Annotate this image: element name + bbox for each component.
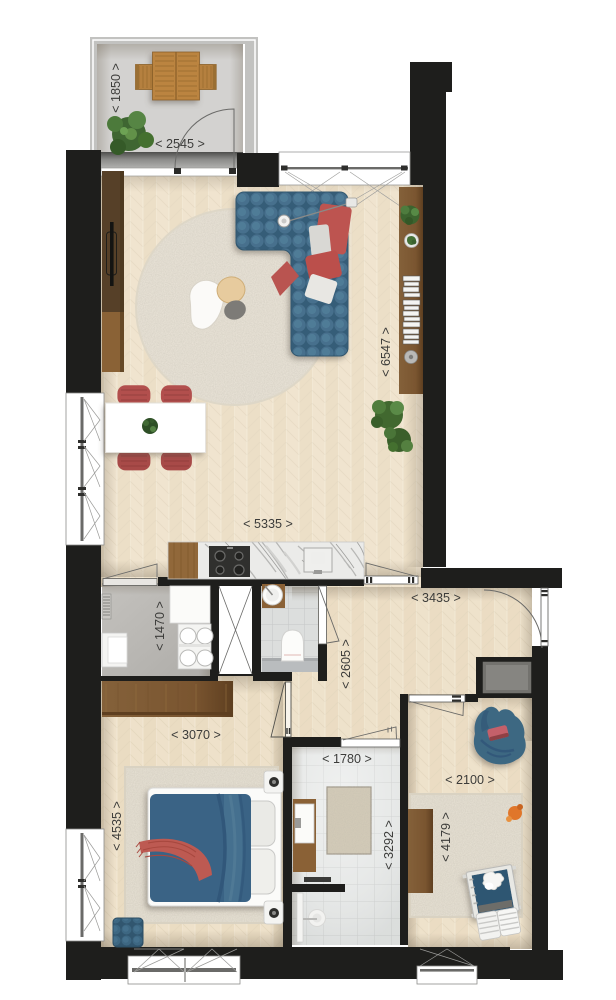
svg-text:< 3292 >: < 3292 > [382,820,396,870]
svg-text:< 4179 >: < 4179 > [439,812,453,862]
svg-text:< 1780 >: < 1780 > [322,752,372,766]
svg-text:< 2545 >: < 2545 > [155,137,205,151]
svg-text:< 3435 >: < 3435 > [411,591,461,605]
svg-text:< 6547 >: < 6547 > [379,327,393,377]
svg-text:< 1470 >: < 1470 > [153,601,167,651]
svg-text:< 2100 >: < 2100 > [445,773,495,787]
svg-text:< 5335 >: < 5335 > [243,517,293,531]
svg-text:< 3070 >: < 3070 > [171,728,221,742]
svg-text:< 4535 >: < 4535 > [110,801,124,851]
svg-text:< 2605 >: < 2605 > [339,639,353,689]
svg-text:< 1850 >: < 1850 > [109,63,123,113]
